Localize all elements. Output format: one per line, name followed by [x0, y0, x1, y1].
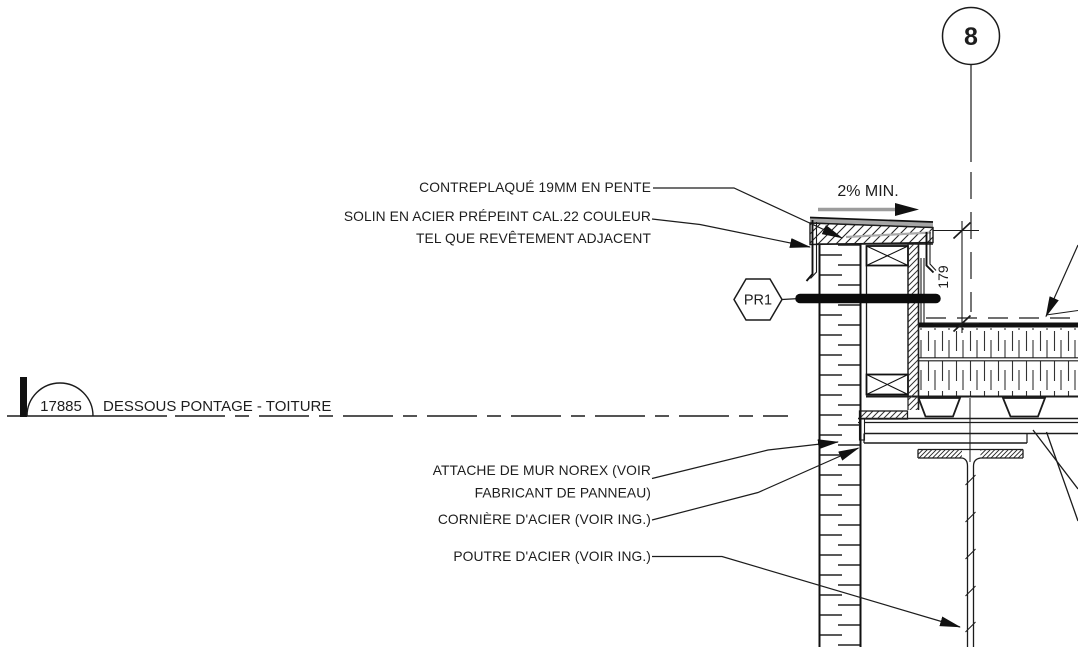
insulation-layer-1	[919, 328, 1078, 358]
leader-membrane-from-right	[1046, 245, 1078, 317]
insulation-divider	[919, 358, 1078, 361]
steel-beam	[918, 450, 1023, 647]
roof-assembly	[858, 318, 1078, 423]
leader-attachment	[652, 442, 838, 479]
label-attachment-1: ATTACHE DE MUR NOREX (VOIR	[433, 463, 651, 478]
label-angle: CORNIÈRE D'ACIER (VOIR ING.)	[438, 511, 651, 527]
brace	[1033, 430, 1078, 521]
dimension-value: 179	[935, 265, 951, 289]
wall-assembly	[816, 244, 933, 647]
label-plywood: CONTREPLAQUÉ 19MM EN PENTE	[419, 179, 651, 195]
datum-marker: 17885 DESSOUS PONTAGE - TOITURE	[20, 377, 331, 417]
slope-annotation: 2% MIN.	[818, 183, 919, 216]
detail-svg: 8 179 PR1 2% MIN. 17885 DESSOUS PONTAGE …	[0, 0, 1078, 647]
datum-label: DESSOUS PONTAGE - TOITURE	[103, 398, 331, 415]
wood-blocking-bottom	[867, 375, 909, 395]
label-attachment-2: FABRICANT DE PANNEAU)	[475, 486, 651, 501]
dimension-179: 179	[933, 221, 979, 333]
label-flashing-2: TEL QUE REVÊTEMENT ADJACENT	[416, 230, 651, 246]
bearing-plates	[864, 434, 1078, 444]
grid-bubble-label: 8	[964, 23, 978, 51]
leader-lines	[652, 188, 1078, 627]
leader-beam	[652, 557, 960, 628]
cavity-lines	[867, 266, 909, 375]
construction-detail-drawing: 8 179 PR1 2% MIN. 17885 DESSOUS PONTAGE …	[0, 0, 1078, 647]
annotation-labels: CONTREPLAQUÉ 19MM EN PENTE SOLIN EN ACIE…	[344, 179, 652, 564]
label-beam: POUTRE D'ACIER (VOIR ING.)	[453, 549, 651, 564]
masonry-panel	[820, 244, 861, 647]
leader-flashing	[652, 219, 810, 247]
datum-bar	[20, 377, 27, 417]
label-flashing-1: SOLIN EN ACIER PRÉPEINT CAL.22 COULEUR	[344, 208, 651, 224]
wood-blocking-top	[867, 246, 909, 266]
steel-angle	[860, 411, 908, 440]
membrane-upstand	[921, 258, 924, 323]
slope-label: 2% MIN.	[837, 183, 898, 200]
leader-membrane-tail	[1046, 311, 1078, 316]
datum-elevation: 17885	[40, 398, 82, 415]
slope-arrow-head	[895, 203, 919, 216]
wall-tag-label: PR1	[744, 293, 772, 309]
insulation-layer-2	[919, 361, 1078, 396]
sheathing	[908, 244, 919, 410]
